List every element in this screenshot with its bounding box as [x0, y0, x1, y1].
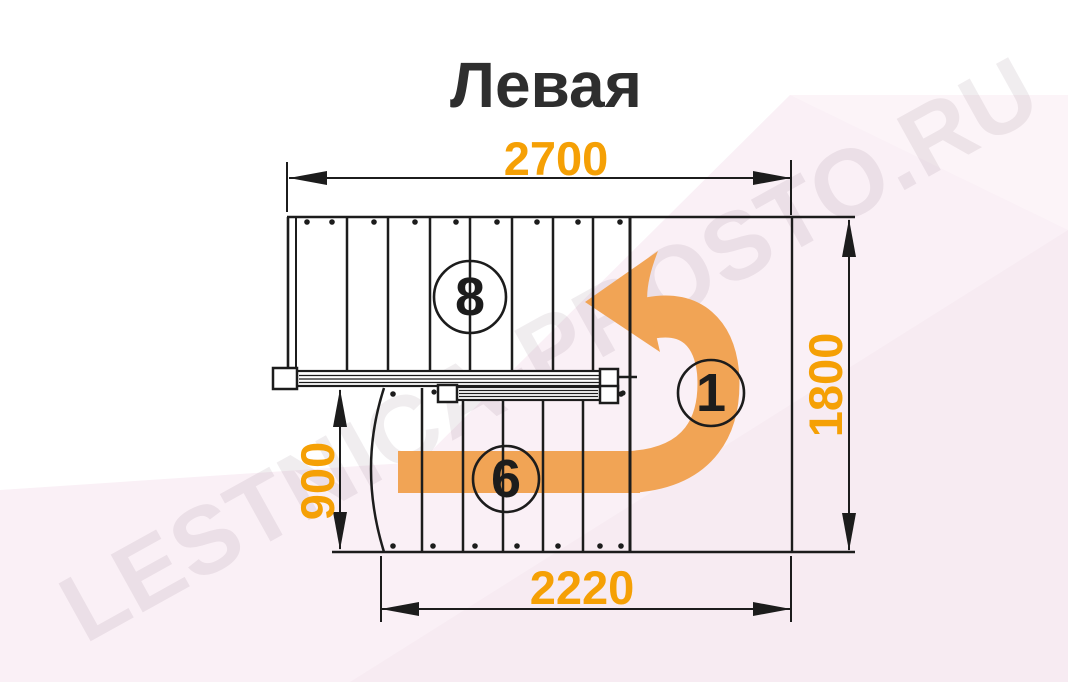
turn-step-label: 1	[671, 360, 751, 426]
dim-right-value: 1800	[802, 295, 850, 475]
beam-cap	[438, 385, 457, 402]
diagram-title: Левая	[346, 48, 746, 122]
lower-flight-steps-label: 6	[466, 446, 546, 512]
beam-cap	[600, 386, 618, 403]
dim-bottom-value: 2220	[482, 560, 682, 615]
beam-cap	[273, 368, 297, 389]
upper-flight-steps-label: 8	[430, 264, 510, 330]
dim-left-value: 900	[294, 401, 342, 561]
landing-beams	[273, 368, 637, 403]
stair-plan-diagram: LESTNICA-PROSTO.RU	[0, 0, 1068, 682]
dim-top-value: 2700	[456, 131, 656, 186]
lower-flight-left-curve	[371, 388, 384, 552]
upper-flight-fixing-dots	[304, 219, 623, 225]
